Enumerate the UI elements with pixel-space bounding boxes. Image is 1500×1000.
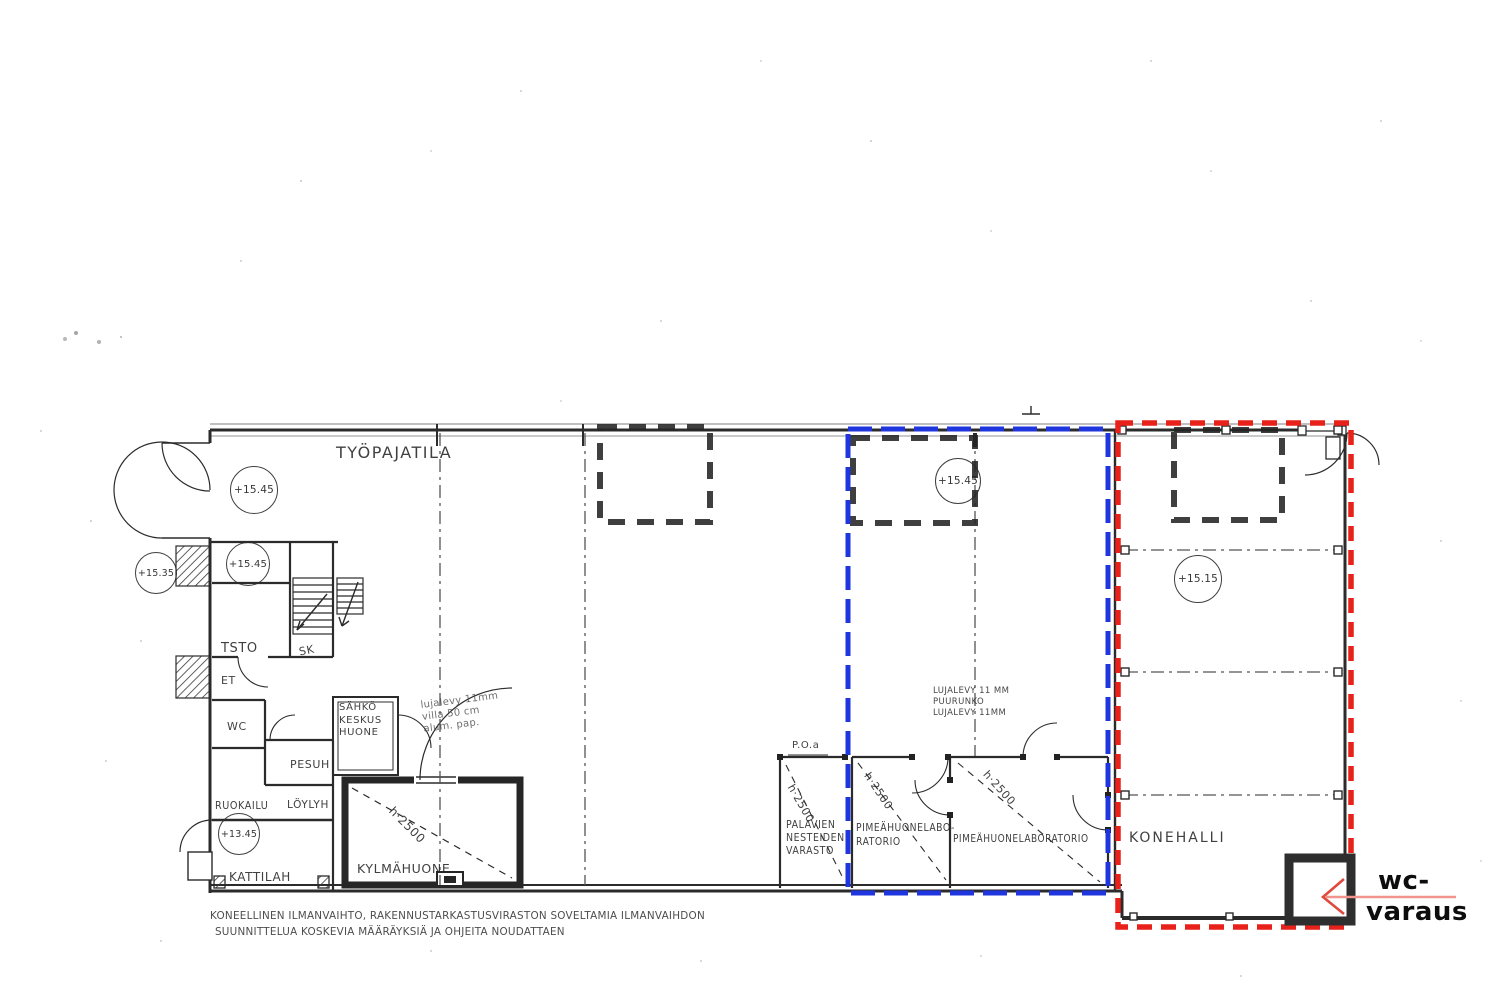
label-poa: P.O.a (792, 740, 819, 751)
room-label-loylyh: LÖYLYH (287, 799, 329, 811)
scan-noise-speckles (0, 0, 2, 2)
red-zone-outline (1118, 423, 1351, 927)
column-grid-lines (440, 433, 1338, 885)
wc-varaus-line2: varaus (1366, 897, 1468, 928)
wc-varaus-line1: wc- (1366, 866, 1468, 897)
room-label-wc: WC (227, 720, 247, 733)
level-marker: +15.45 (230, 466, 278, 514)
level-marker: +13.45 (218, 813, 260, 855)
room-label-kattilah: KATTILAH (229, 870, 291, 884)
room-label-palavien-nesteiden-varasto: PALAVIEN NESTEIDEN VARASTO (786, 819, 845, 858)
level-marker: +15.45 (226, 542, 270, 586)
lab-room-walls (777, 723, 1111, 888)
room-label-pesuh: PESUH (290, 758, 330, 771)
footer-note: KONEELLINEN ILMANVAIHTO, RAKENNUSTARKAST… (210, 908, 705, 940)
room-label-pimeahuonelaboratorio-2: PIMEÄHUONELABORATORIO (953, 832, 1089, 845)
room-label-konehalli: KONEHALLI (1129, 830, 1226, 846)
room-label-tsto: TSTO (221, 641, 258, 656)
level-marker: +15.15 (1174, 555, 1222, 603)
wall-construction-note: LUJALEVY 11 MM PUURUNKO LUJALEVY 11MM (933, 686, 1009, 719)
level-marker: +15.35 (135, 552, 177, 594)
room-label-kylmahuone: KYLMÄHUONE (357, 861, 450, 876)
room-label-pimeahuonelaboratorio-1: PIMEÄHUONELABO- RATORIO (856, 821, 955, 849)
room-label-tyopajatila: TYÖPAJATILA (336, 443, 452, 462)
room-label-sahkokeskushuone: SÄHKÖ KESKUS HUONE (339, 702, 382, 740)
room-label-ruokailu: RUOKAILU (215, 800, 268, 812)
scanned-floor-plan-page: TYÖPAJATILA TSTO SK ET WC PESUH RUOKAILU… (0, 0, 1500, 1000)
room-label-et: ET (221, 674, 236, 687)
wc-varaus-annotation: wc- varaus (1366, 866, 1468, 928)
level-marker: +15.45 (935, 458, 981, 504)
